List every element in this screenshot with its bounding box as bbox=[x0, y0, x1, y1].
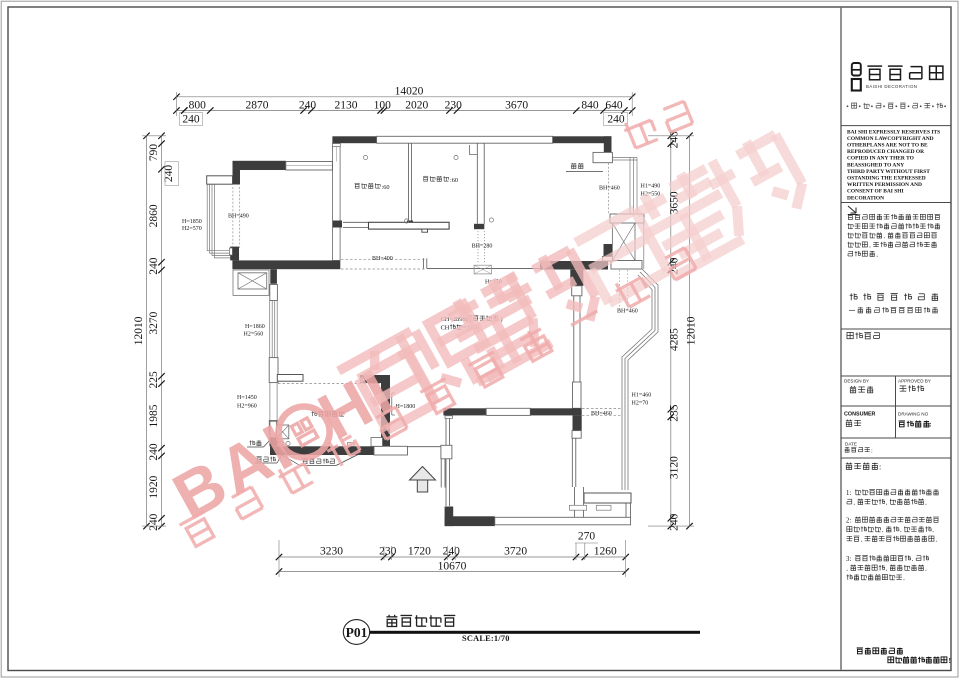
svg-text:P01: P01 bbox=[346, 625, 368, 640]
svg-text::60: :60 bbox=[382, 184, 390, 191]
svg-text:1985: 1985 bbox=[148, 404, 160, 427]
svg-text:3:: 3: bbox=[846, 556, 851, 563]
svg-text:3120: 3120 bbox=[669, 456, 681, 479]
svg-text:230: 230 bbox=[379, 546, 397, 558]
svg-text:1920: 1920 bbox=[148, 475, 160, 498]
svg-text:H2=570: H2=570 bbox=[182, 226, 202, 232]
svg-text:12010: 12010 bbox=[133, 316, 145, 345]
svg-text:THIRD PARTY WITHOUT FIRST: THIRD PARTY WITHOUT FIRST bbox=[847, 169, 930, 175]
svg-text:WRITTEN PERMISSION AND: WRITTEN PERMISSION AND bbox=[847, 182, 922, 188]
svg-text:H2=960: H2=960 bbox=[237, 404, 257, 410]
svg-text:BH=460: BH=460 bbox=[599, 186, 620, 192]
svg-text:1:: 1: bbox=[846, 490, 851, 497]
svg-text:2:: 2: bbox=[846, 518, 851, 525]
svg-text:2870: 2870 bbox=[246, 99, 269, 111]
svg-text:DRAWING NO: DRAWING NO bbox=[898, 412, 929, 417]
svg-text:235: 235 bbox=[669, 404, 681, 422]
svg-text:H1=490: H1=490 bbox=[641, 184, 661, 190]
svg-text:REPRODUCED CHANGED OR: REPRODUCED CHANGED OR bbox=[847, 149, 924, 155]
svg-text:BH=280: BH=280 bbox=[472, 244, 493, 250]
svg-text:OSTANDING THE EXPRESSED: OSTANDING THE EXPRESSED bbox=[847, 176, 926, 182]
svg-text:2860: 2860 bbox=[148, 204, 160, 227]
svg-text::: : bbox=[929, 420, 932, 429]
svg-text::: : bbox=[871, 447, 873, 454]
svg-text:240: 240 bbox=[669, 513, 681, 531]
svg-text:BAISHI DECORATION: BAISHI DECORATION bbox=[866, 84, 917, 89]
svg-text:240: 240 bbox=[299, 99, 317, 111]
svg-text:BH=490: BH=490 bbox=[228, 214, 249, 220]
svg-text:3670: 3670 bbox=[505, 99, 528, 111]
svg-text:240: 240 bbox=[182, 114, 200, 126]
svg-text:H=1860: H=1860 bbox=[245, 324, 265, 330]
svg-text:3270: 3270 bbox=[148, 311, 160, 334]
svg-text:240: 240 bbox=[607, 114, 625, 126]
svg-text:2020: 2020 bbox=[405, 99, 428, 111]
svg-text:CONSUMER: CONSUMER bbox=[844, 412, 876, 418]
svg-text:1720: 1720 bbox=[408, 546, 431, 558]
svg-text:COPIED IN ANY THER TO: COPIED IN ANY THER TO bbox=[847, 156, 914, 162]
svg-text:790: 790 bbox=[148, 144, 160, 162]
svg-text:CH: CH bbox=[441, 324, 450, 331]
svg-text:DATE: DATE bbox=[845, 442, 857, 447]
svg-text:225: 225 bbox=[148, 371, 160, 389]
svg-text:DECORATION: DECORATION bbox=[847, 195, 884, 201]
svg-text:APPROVED BY: APPROVED BY bbox=[898, 379, 931, 384]
svg-text:4285: 4285 bbox=[669, 328, 681, 351]
svg-text:640: 640 bbox=[605, 99, 623, 111]
svg-text:230: 230 bbox=[445, 99, 463, 111]
svg-text::: : bbox=[879, 463, 881, 472]
svg-text:12010: 12010 bbox=[686, 316, 698, 345]
svg-text:240: 240 bbox=[443, 546, 461, 558]
svg-text:OTHERPLANS ARE NOT TO BE: OTHERPLANS ARE NOT TO BE bbox=[847, 143, 928, 149]
svg-text:270: 270 bbox=[578, 531, 596, 543]
svg-text:BH=460: BH=460 bbox=[591, 411, 612, 417]
svg-text:2130: 2130 bbox=[335, 99, 358, 111]
svg-text:BH=460: BH=460 bbox=[617, 309, 638, 315]
svg-text:H=1450: H=1450 bbox=[237, 395, 257, 401]
svg-text:SCALE:1/70: SCALE:1/70 bbox=[462, 634, 510, 643]
svg-text:3720: 3720 bbox=[504, 546, 527, 558]
svg-text:BEASSIGHED TO ANY: BEASSIGHED TO ANY bbox=[847, 162, 904, 168]
svg-text:14020: 14020 bbox=[395, 86, 424, 98]
svg-text:CONSENT OF BAI SHI: CONSENT OF BAI SHI bbox=[847, 189, 904, 195]
svg-text:H1=460: H1=460 bbox=[632, 393, 652, 399]
svg-text:COMMON LAWCOPYRIGHT AND: COMMON LAWCOPYRIGHT AND bbox=[847, 136, 934, 142]
svg-text:H2=70: H2=70 bbox=[632, 401, 649, 407]
svg-text:BAI SHI EXPRESSLY RESERVES ITS: BAI SHI EXPRESSLY RESERVES ITS bbox=[847, 129, 940, 135]
svg-text:800: 800 bbox=[189, 99, 207, 111]
svg-text:BH=400: BH=400 bbox=[372, 256, 393, 262]
svg-text:H2=560: H2=560 bbox=[244, 332, 264, 338]
svg-text:DESIGN BY: DESIGN BY bbox=[844, 379, 869, 384]
svg-text:3230: 3230 bbox=[320, 546, 343, 558]
svg-text:100: 100 bbox=[374, 99, 392, 111]
svg-text:840: 840 bbox=[581, 99, 599, 111]
svg-text:1260: 1260 bbox=[594, 546, 617, 558]
svg-text:240: 240 bbox=[669, 131, 681, 149]
svg-text:240: 240 bbox=[148, 257, 160, 275]
svg-text:!: ! bbox=[949, 656, 952, 665]
svg-text:H=1850: H=1850 bbox=[182, 219, 202, 225]
svg-text:10670: 10670 bbox=[438, 560, 467, 572]
svg-text:240: 240 bbox=[148, 513, 160, 531]
svg-text::60: :60 bbox=[450, 177, 458, 184]
svg-text:240: 240 bbox=[148, 443, 160, 461]
